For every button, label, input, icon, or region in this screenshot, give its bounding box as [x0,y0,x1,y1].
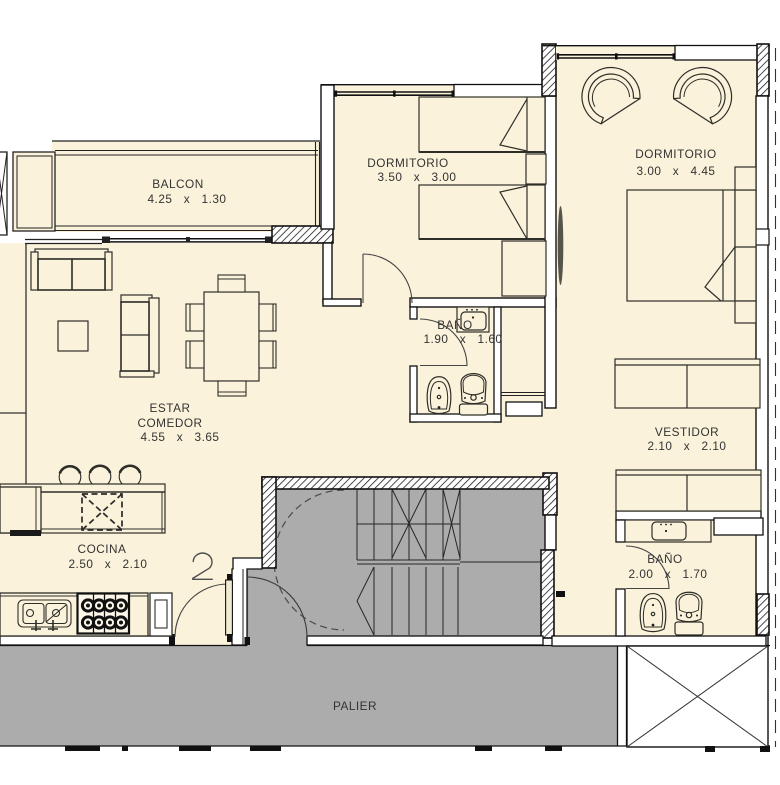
svg-text:BAÑO: BAÑO [437,318,472,332]
svg-text:2.10 x 2.10: 2.10 x 2.10 [648,439,727,453]
svg-text:DORMITORIO: DORMITORIO [635,147,716,161]
svg-text:VESTIDOR: VESTIDOR [655,425,719,439]
svg-text:DORMITORIO: DORMITORIO [367,156,448,170]
svg-text:3.00 x 4.45: 3.00 x 4.45 [637,164,716,178]
svg-text:4.25 x 1.30: 4.25 x 1.30 [148,192,227,206]
svg-text:COCINA: COCINA [78,542,127,556]
svg-text:BAÑO: BAÑO [647,552,682,566]
svg-text:2.00 x 1.70: 2.00 x 1.70 [629,567,708,581]
svg-text:PALIER: PALIER [333,699,377,713]
svg-text:BALCON: BALCON [152,177,204,191]
svg-text:COMEDOR: COMEDOR [137,416,202,430]
svg-text:3.50 x 3.00: 3.50 x 3.00 [378,170,457,184]
svg-text:2.50 x 2.10: 2.50 x 2.10 [69,557,148,571]
svg-text:4.55 x 3.65: 4.55 x 3.65 [141,430,220,444]
svg-text:ESTAR: ESTAR [150,401,191,415]
svg-text:1.90 x 1.60: 1.90 x 1.60 [424,332,503,346]
